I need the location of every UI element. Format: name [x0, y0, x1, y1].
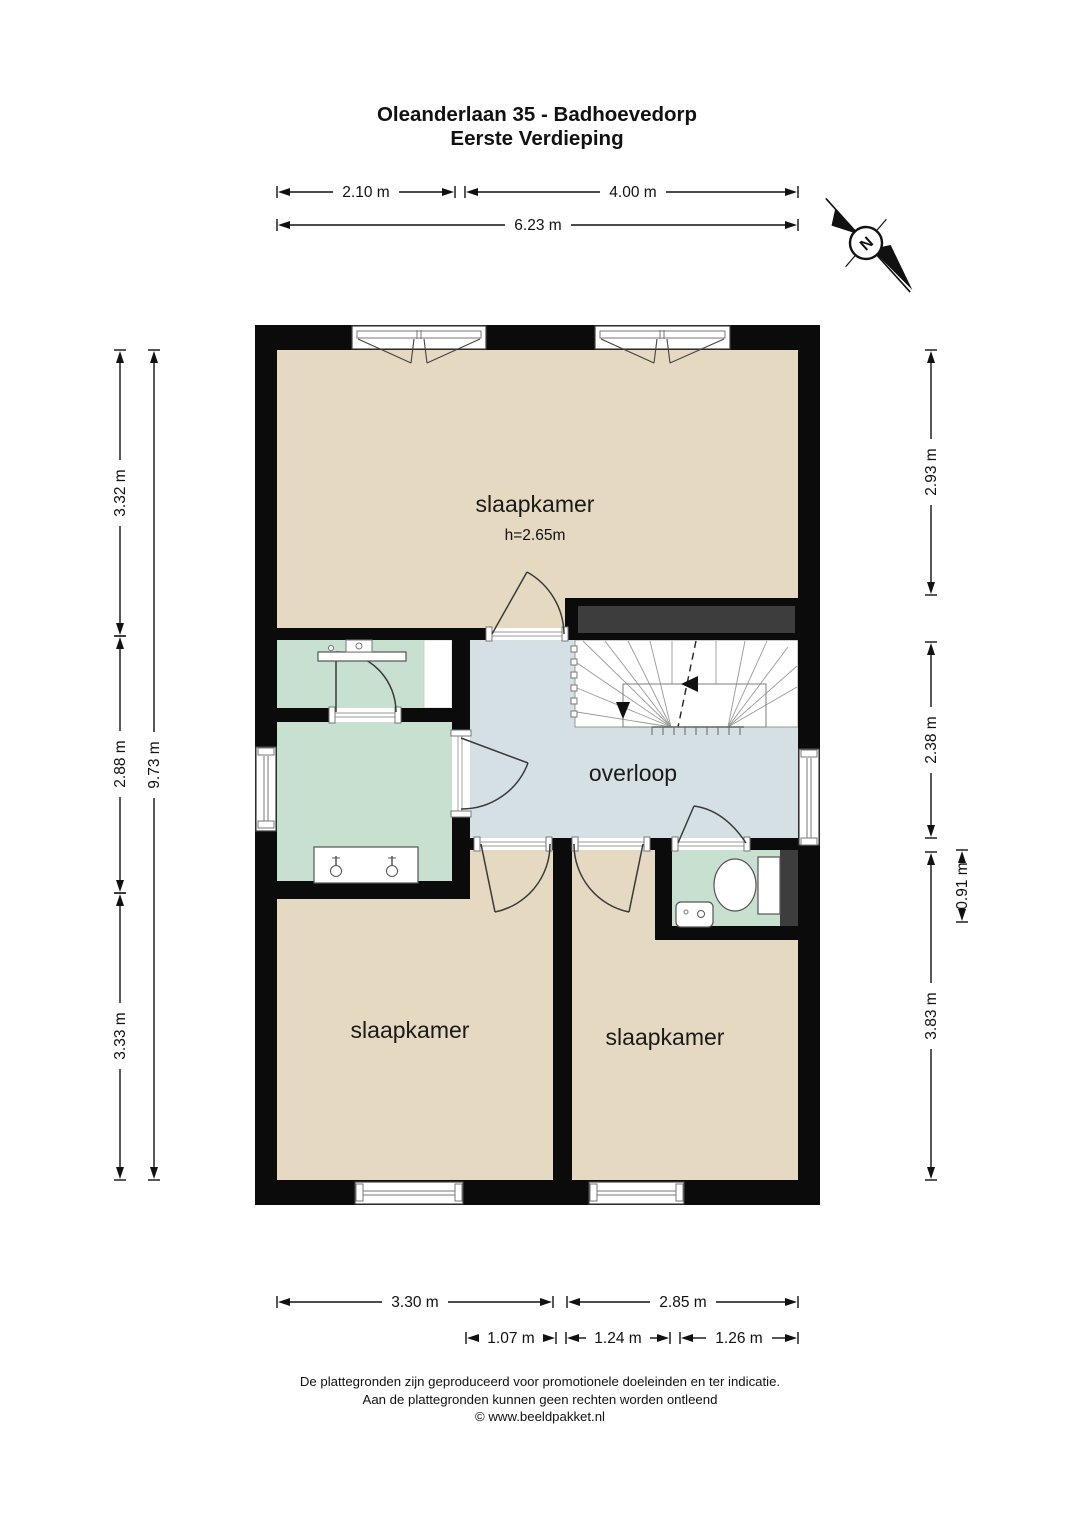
stairwell-void-panel — [578, 606, 795, 633]
svg-text:4.00 m: 4.00 m — [609, 184, 656, 201]
floorplan-canvas: Oleanderlaan 35 - Badhoevedorp Eerste Ve… — [0, 0, 1080, 1527]
dimension-bottom-1-26: 1.26 m — [680, 1330, 798, 1347]
window-right — [799, 749, 819, 845]
dimension-bottom-3-30: 3.30 m — [277, 1294, 553, 1311]
bathroom-double-sink — [314, 847, 418, 883]
wall-bedroom-divider — [553, 850, 572, 1180]
label-bedroom-left: slaapkamer — [351, 1017, 470, 1043]
dimension-top-2-10: 2.10 m — [277, 184, 455, 201]
window-left — [256, 747, 276, 831]
footer-line-2: Aan de plattegronden kunnen geen rechten… — [363, 1392, 718, 1407]
svg-text:3.32 m: 3.32 m — [112, 469, 129, 516]
laundry-faucet-icon — [329, 646, 334, 651]
svg-text:0.91 m: 0.91 m — [954, 862, 971, 909]
wall-bathroom-bottom — [277, 881, 470, 899]
dimension-right-3-83: 3.83 m — [923, 852, 940, 1180]
floor-plan: slaapkamer h=2.65m overloop slaapkamer s… — [255, 325, 820, 1205]
dimension-right-2-93: 2.93 m — [923, 350, 940, 595]
label-bedroom-top: slaapkamer — [476, 491, 595, 517]
washer-icon — [346, 640, 372, 652]
footer-disclaimer: De plattegronden zijn geproduceerd voor … — [300, 1374, 780, 1424]
label-bedroom-right: slaapkamer — [606, 1024, 725, 1050]
svg-text:2.38 m: 2.38 m — [923, 716, 940, 763]
title-line-1: Oleanderlaan 35 - Badhoevedorp — [377, 103, 697, 126]
dimension-top-6-23: 6.23 m — [277, 217, 798, 234]
dimension-left-3-32: 3.32 m — [112, 350, 129, 636]
wall-outer-top — [255, 325, 820, 350]
staircase — [571, 640, 798, 735]
wall-wc-left — [655, 838, 672, 940]
label-bedroom-top-height: h=2.65m — [505, 527, 566, 544]
footer-line-1: De plattegronden zijn geproduceerd voor … — [300, 1374, 780, 1389]
dimension-bottom-2-85: 2.85 m — [567, 1294, 798, 1311]
room-bedroom-top-floor — [277, 347, 798, 628]
wc-sink-icon — [676, 902, 713, 927]
svg-text:3.83 m: 3.83 m — [923, 992, 940, 1039]
wc-duct-panel — [780, 850, 798, 926]
dimension-left-9-73: 9.73 m — [146, 350, 163, 1180]
dimension-bottom-1-24: 1.24 m — [566, 1330, 670, 1347]
laundry-closet-niche — [424, 640, 452, 708]
svg-text:2.10 m: 2.10 m — [342, 184, 389, 201]
window-bottom-1 — [355, 1182, 463, 1204]
dimension-left-2-88: 2.88 m — [112, 636, 129, 893]
svg-text:1.26 m: 1.26 m — [715, 1330, 762, 1347]
window-bottom-2 — [589, 1182, 684, 1204]
svg-text:2.88 m: 2.88 m — [112, 740, 129, 787]
toilet-icon — [714, 857, 780, 914]
dimension-left-3-33: 3.33 m — [112, 893, 129, 1180]
compass-icon: N — [803, 178, 933, 313]
title-line-2: Eerste Verdieping — [450, 127, 623, 150]
page-title: Oleanderlaan 35 - Badhoevedorp Eerste Ve… — [377, 103, 697, 150]
svg-text:1.07 m: 1.07 m — [487, 1330, 534, 1347]
svg-text:6.23 m: 6.23 m — [514, 217, 561, 234]
svg-text:2.93 m: 2.93 m — [923, 448, 940, 495]
dimension-bottom-1-07: 1.07 m — [466, 1330, 556, 1347]
dimension-right-2-38: 2.38 m — [923, 642, 940, 838]
dimension-right-0-91: 0.91 m — [954, 850, 971, 922]
footer-line-3: © www.beeldpakket.nl — [475, 1409, 605, 1424]
wall-outer-bottom — [255, 1180, 820, 1205]
label-landing: overloop — [589, 760, 677, 786]
room-bedroom-left-floor — [277, 850, 553, 1180]
svg-text:3.33 m: 3.33 m — [112, 1012, 129, 1059]
dimension-top-4-00: 4.00 m — [465, 184, 798, 201]
svg-text:3.30 m: 3.30 m — [391, 1294, 438, 1311]
svg-text:9.73 m: 9.73 m — [146, 741, 163, 788]
svg-text:2.85 m: 2.85 m — [659, 1294, 706, 1311]
svg-text:1.24 m: 1.24 m — [594, 1330, 641, 1347]
wall-wc-bottom — [655, 926, 798, 940]
